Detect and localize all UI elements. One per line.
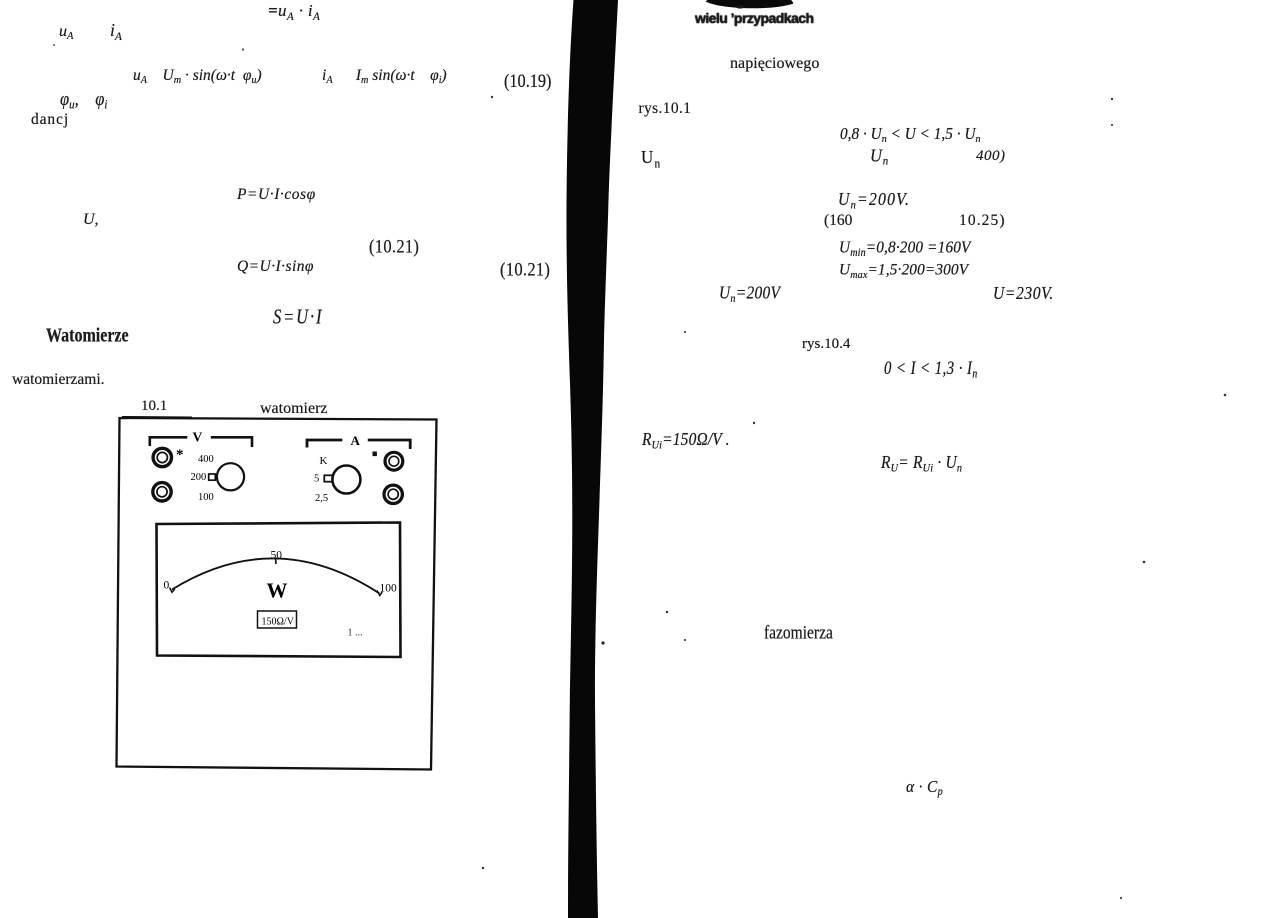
svg-text:100: 100	[380, 583, 398, 595]
svg-text:V: V	[193, 430, 203, 445]
svg-text:400: 400	[198, 454, 214, 465]
svg-text:*: *	[176, 447, 184, 463]
svg-text:5: 5	[314, 474, 319, 485]
svg-text:200: 200	[191, 472, 207, 483]
svg-text:1 ...: 1 ...	[348, 628, 363, 639]
svg-text:W: W	[267, 579, 288, 603]
svg-text:K: K	[320, 455, 328, 467]
svg-text:A: A	[351, 433, 361, 448]
svg-text:100: 100	[198, 492, 214, 503]
svg-text:50: 50	[271, 550, 283, 562]
svg-text:0: 0	[164, 580, 170, 592]
svg-text:2,5: 2,5	[315, 493, 328, 504]
svg-text:150Ω/V: 150Ω/V	[262, 617, 295, 628]
